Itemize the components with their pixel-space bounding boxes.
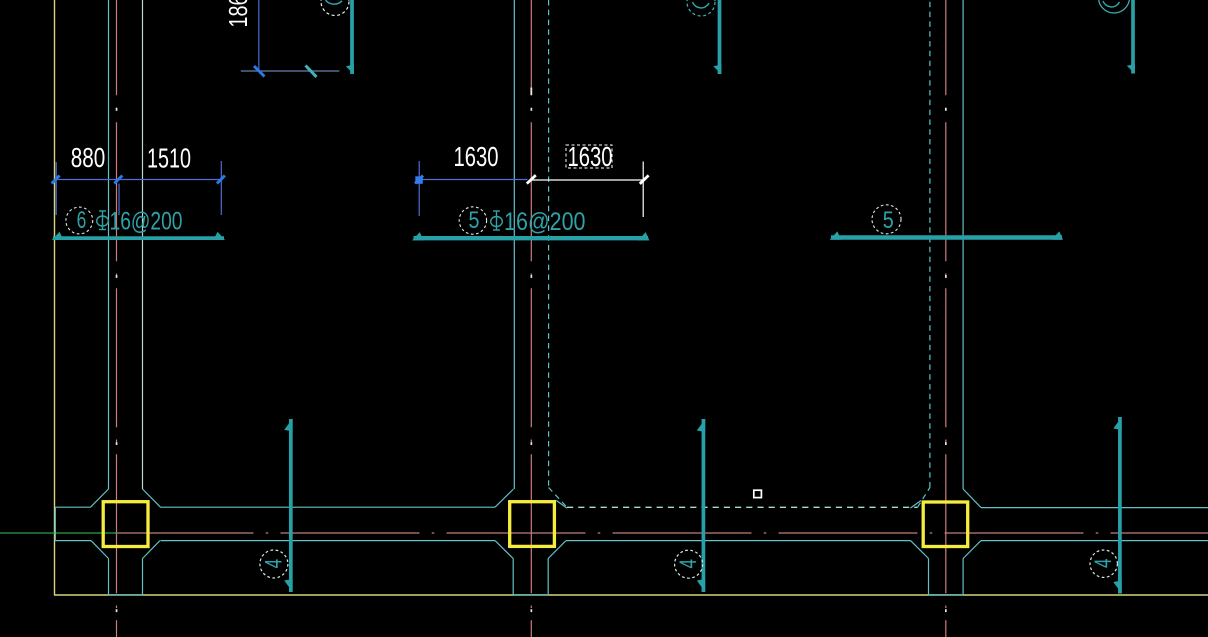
svg-text:5: 5 <box>469 207 480 234</box>
svg-text:4: 4 <box>675 559 702 569</box>
svg-text:16@200: 16@200 <box>110 208 183 236</box>
svg-text:1510: 1510 <box>147 142 191 173</box>
svg-text:16@200: 16@200 <box>504 208 586 236</box>
svg-text:4: 4 <box>1090 559 1117 569</box>
svg-text:6: 6 <box>77 207 87 234</box>
svg-text:1630: 1630 <box>454 141 499 172</box>
svg-text:5: 5 <box>883 207 894 234</box>
svg-text:1860: 1860 <box>223 0 253 28</box>
svg-text:880: 880 <box>71 142 106 173</box>
svg-text:4: 4 <box>260 559 287 569</box>
